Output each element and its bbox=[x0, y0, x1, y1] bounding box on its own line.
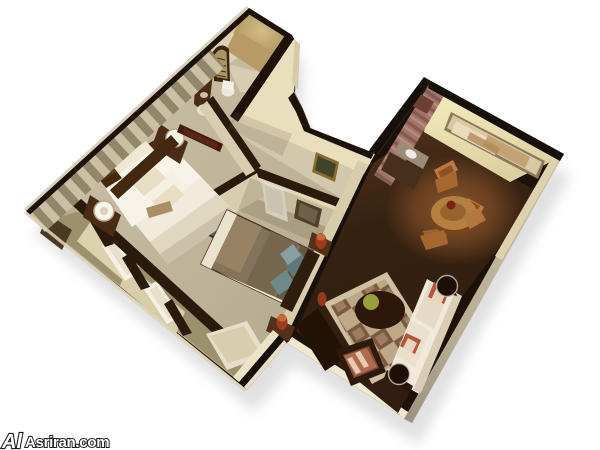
svg-text:Asriran.com: Asriran.com bbox=[25, 434, 109, 450]
svg-text:Al: Al bbox=[1, 431, 22, 450]
